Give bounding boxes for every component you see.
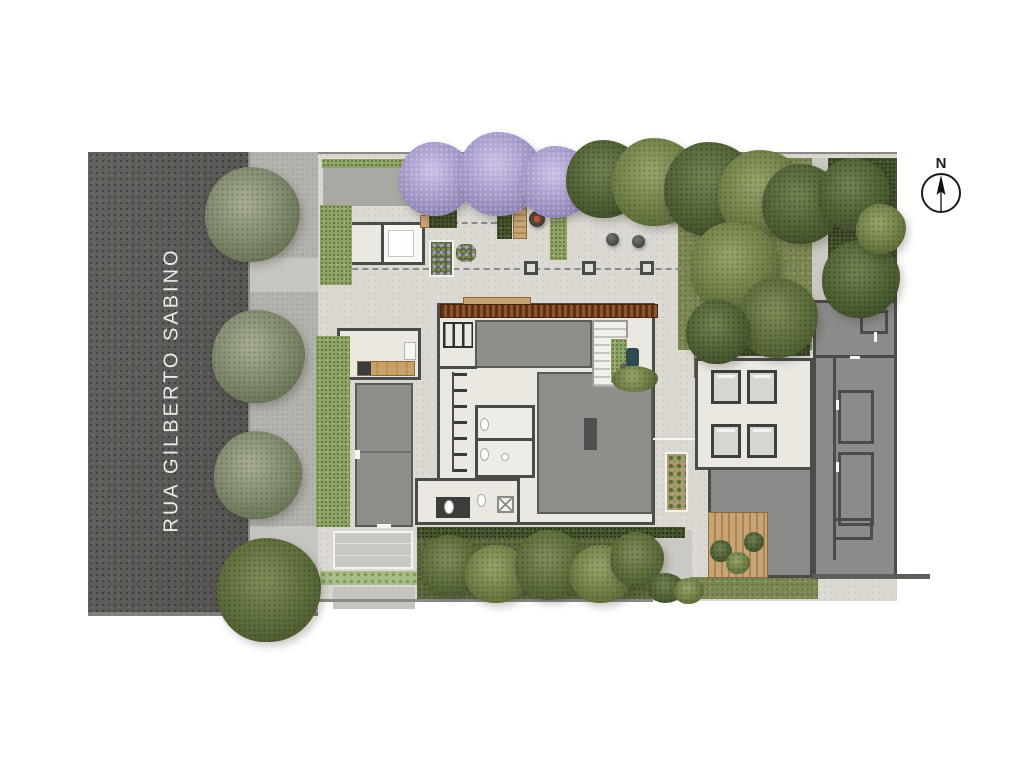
restrooms xyxy=(475,405,535,478)
street-name-label: RUA GILBERTO SABINO xyxy=(161,247,184,532)
washer-fixture xyxy=(444,500,454,514)
driveway-apron xyxy=(333,587,415,609)
street-tree xyxy=(212,310,305,403)
street-tree xyxy=(214,431,302,519)
door-mark xyxy=(355,450,360,459)
deck-plant xyxy=(726,552,750,574)
elevator xyxy=(711,424,741,458)
service-court xyxy=(333,531,413,569)
east-room xyxy=(833,518,873,540)
roof-step-line xyxy=(357,451,411,453)
east-garden-tree xyxy=(856,204,906,254)
street-tree xyxy=(217,538,321,642)
roof-skylight xyxy=(584,418,597,450)
structural-column xyxy=(524,261,538,275)
interior-wall xyxy=(437,366,477,369)
structural-column xyxy=(640,261,654,275)
compass-needle-icon xyxy=(922,174,960,212)
toilet-fixture xyxy=(480,418,489,431)
structural-column xyxy=(582,261,596,275)
pouf-seat xyxy=(606,233,619,246)
boundary-wall-line xyxy=(813,574,930,579)
dry-garden-planter xyxy=(665,452,688,512)
door-mark xyxy=(836,400,839,410)
elevator xyxy=(747,370,777,404)
walk-step-line xyxy=(653,438,695,440)
west-hedge xyxy=(316,336,350,527)
flower-planter xyxy=(429,240,454,277)
compass-n-label: N xyxy=(936,155,947,172)
toilet-fixture xyxy=(480,448,489,461)
west-hedge xyxy=(320,205,352,285)
door-mark xyxy=(377,524,391,528)
south-grass-strip xyxy=(690,577,818,599)
planter-foliage xyxy=(612,366,658,392)
pedestrian-entrance-walk xyxy=(250,258,318,292)
courtyard-tree xyxy=(738,278,818,358)
site-plan: RUA GILBERTO SABINO N xyxy=(0,0,1024,776)
bike-rack xyxy=(626,348,639,367)
pergola xyxy=(440,304,658,318)
door-mark xyxy=(874,332,877,342)
deck-plant xyxy=(744,532,764,552)
refrigerator xyxy=(404,342,416,360)
reception-desk xyxy=(388,230,414,257)
east-room xyxy=(838,390,874,444)
toilet-fixture xyxy=(477,494,486,507)
flower-bed xyxy=(456,244,476,262)
street-tree xyxy=(205,167,300,262)
gym-equipment-row xyxy=(452,372,467,472)
west-wing-roof xyxy=(355,383,413,527)
grass-paver-strip xyxy=(320,571,417,585)
door-mark xyxy=(850,356,860,359)
shrub xyxy=(674,578,704,604)
elevator xyxy=(747,424,777,458)
pouf-seat xyxy=(632,235,645,248)
shower-stall xyxy=(497,496,514,513)
entry-turnstiles xyxy=(443,322,473,348)
kitchen-counter xyxy=(357,361,415,376)
door-mark xyxy=(836,462,839,472)
tower-projection-dashed-line xyxy=(332,268,712,270)
restroom-divider-wall xyxy=(475,438,535,441)
main-roof-upper xyxy=(475,320,592,368)
elevator xyxy=(711,370,741,404)
courtyard-tree xyxy=(686,300,750,364)
north-compass: N xyxy=(908,146,978,226)
east-room xyxy=(838,452,874,526)
sink-fixture xyxy=(501,453,509,461)
